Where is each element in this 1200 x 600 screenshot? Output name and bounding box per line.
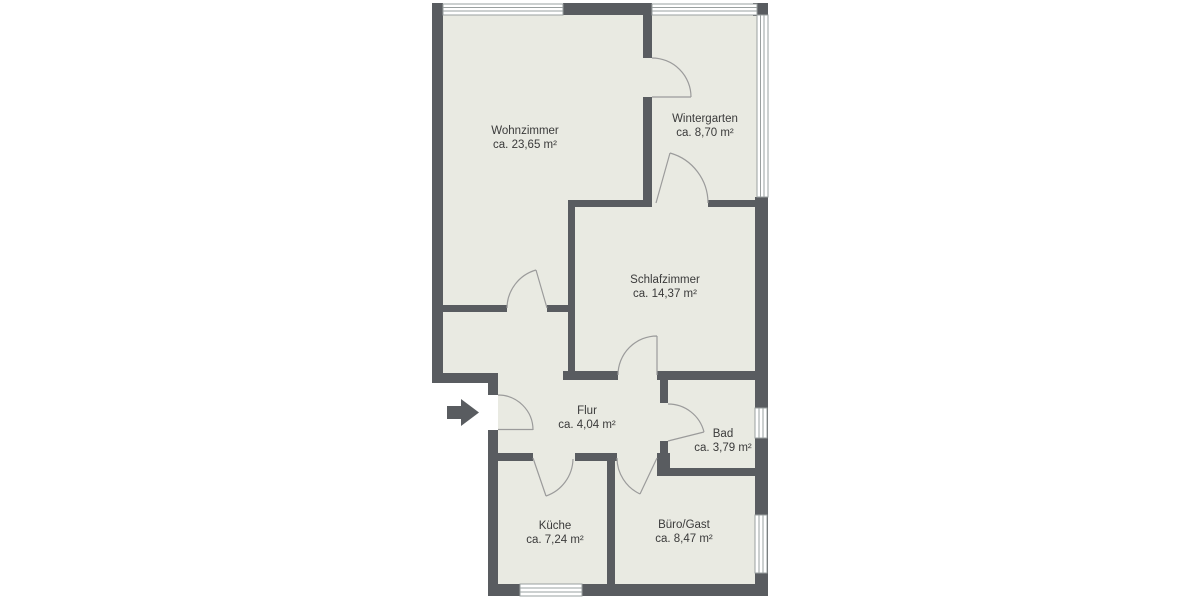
room-area: ca. 3,79 m² <box>694 442 752 456</box>
window-icon <box>443 4 563 15</box>
floor-plan-drawing <box>0 0 1200 600</box>
room-name: Schlafzimmer <box>630 274 700 288</box>
room-name: Wohnzimmer <box>491 125 559 139</box>
room-name: Flur <box>558 405 616 419</box>
room-name: Küche <box>526 520 584 534</box>
room-label-buero-gast: Büro/Gast ca. 8,47 m² <box>655 519 713 546</box>
entrance-opening <box>488 395 498 430</box>
room-area: ca. 14,37 m² <box>630 288 700 302</box>
window-icon <box>652 4 757 15</box>
floor-plan: Wohnzimmer ca. 23,65 m² Wintergarten ca.… <box>0 0 1200 600</box>
room-label-flur: Flur ca. 4,04 m² <box>558 405 616 432</box>
room-label-wohnzimmer: Wohnzimmer ca. 23,65 m² <box>491 125 559 152</box>
room-area: ca. 8,70 m² <box>672 127 738 141</box>
room-area: ca. 23,65 m² <box>491 139 559 153</box>
room-area: ca. 4,04 m² <box>558 419 616 433</box>
room-name: Büro/Gast <box>655 519 713 533</box>
window-icon <box>757 15 768 197</box>
floor-areas <box>416 8 762 600</box>
room-label-wintergarten: Wintergarten ca. 8,70 m² <box>672 113 738 140</box>
room-label-bad: Bad ca. 3,79 m² <box>694 428 752 455</box>
room-area: ca. 7,24 m² <box>526 534 584 548</box>
room-label-schlafzimmer: Schlafzimmer ca. 14,37 m² <box>630 274 700 301</box>
window-icon <box>755 408 767 438</box>
room-name: Bad <box>694 428 752 442</box>
room-area: ca. 8,47 m² <box>655 533 713 547</box>
window-icon <box>755 515 767 573</box>
room-label-kueche: Küche ca. 7,24 m² <box>526 520 584 547</box>
room-name: Wintergarten <box>672 113 738 127</box>
window-icon <box>520 584 582 596</box>
